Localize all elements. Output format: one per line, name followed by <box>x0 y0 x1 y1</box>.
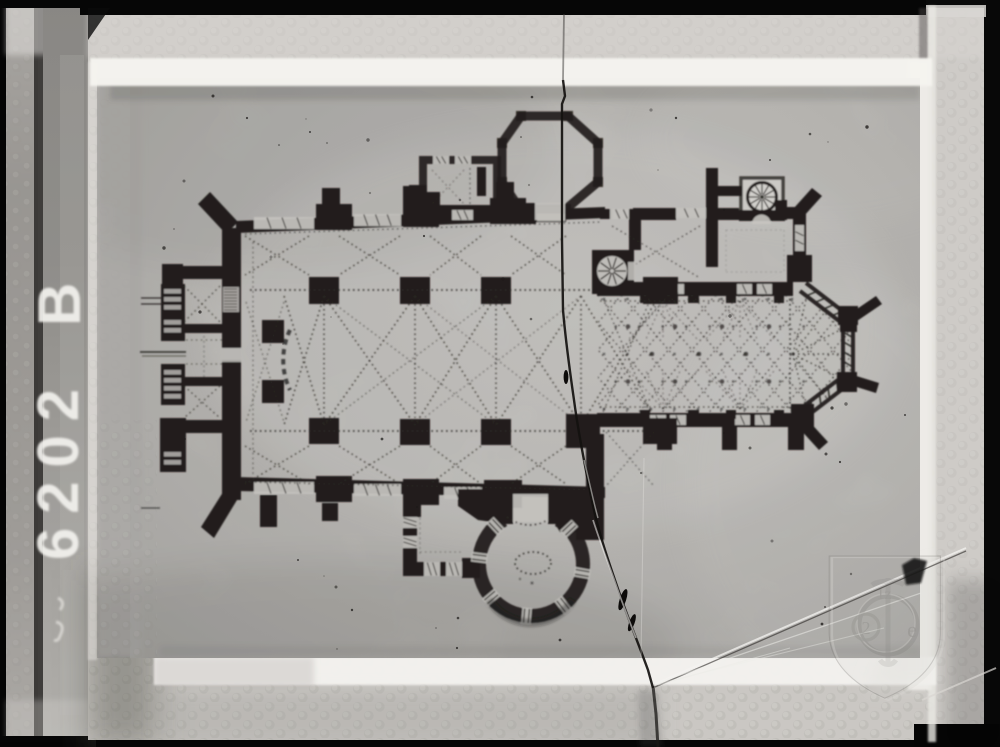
svg-text:6202: 6202 <box>26 375 91 560</box>
svg-text:1z: 1z <box>876 586 891 603</box>
svg-text:e: e <box>907 617 917 642</box>
svg-text:2: 2 <box>862 618 871 638</box>
svg-text:B: B <box>26 283 93 326</box>
